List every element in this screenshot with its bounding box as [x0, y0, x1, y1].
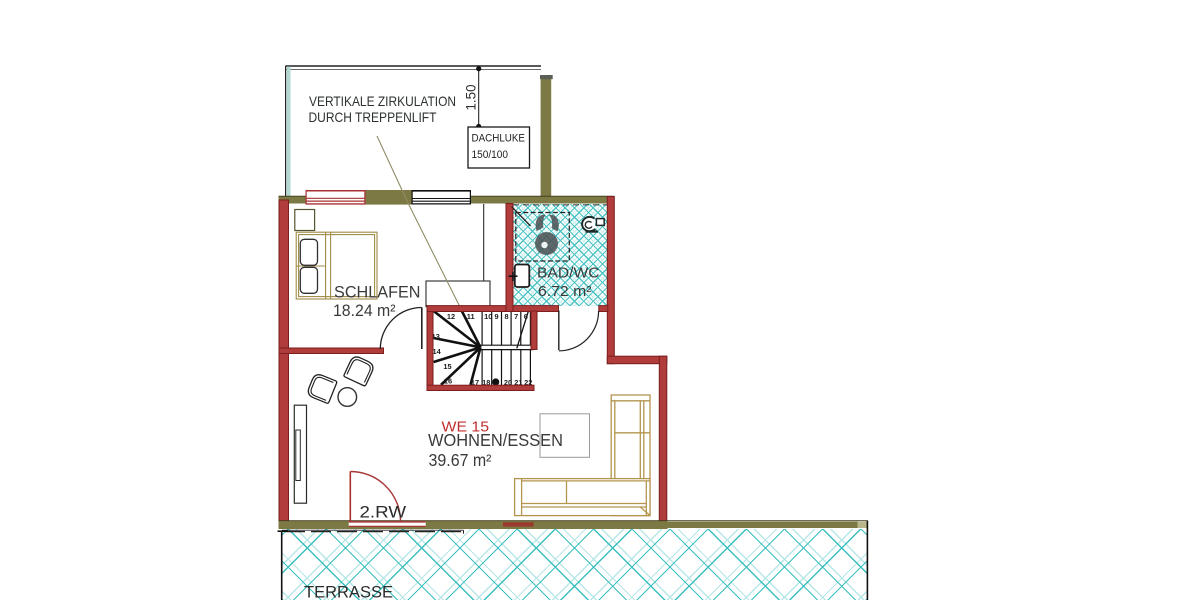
svg-text:11: 11 [467, 312, 475, 321]
svg-text:12: 12 [447, 312, 455, 321]
svg-text:TERRASSE: TERRASSE [304, 583, 393, 600]
svg-text:2.RW: 2.RW [360, 503, 407, 522]
svg-text:16: 16 [444, 377, 452, 386]
svg-text:6.72 m²: 6.72 m² [538, 284, 592, 300]
svg-text:VERTIKALE ZIRKULATION: VERTIKALE ZIRKULATION [309, 94, 456, 109]
svg-text:6: 6 [524, 312, 528, 321]
svg-text:14: 14 [432, 347, 441, 356]
svg-text:8: 8 [505, 312, 509, 321]
svg-text:7: 7 [514, 312, 518, 321]
svg-text:BAD/WC: BAD/WC [537, 266, 600, 282]
svg-text:39.67 m²: 39.67 m² [429, 450, 492, 470]
svg-text:DACHLUKE: DACHLUKE [472, 133, 526, 145]
svg-text:DURCH TREPPENLIFT: DURCH TREPPENLIFT [309, 110, 437, 125]
svg-text:10: 10 [484, 312, 492, 321]
svg-text:9: 9 [495, 312, 499, 321]
svg-text:150/100: 150/100 [472, 149, 509, 161]
svg-text:15: 15 [443, 362, 451, 371]
svg-text:WOHNEN/ESSEN: WOHNEN/ESSEN [428, 430, 563, 450]
svg-text:SCHLAFEN: SCHLAFEN [334, 283, 421, 302]
svg-text:18.24 m²: 18.24 m² [333, 301, 396, 320]
svg-text:1.50: 1.50 [463, 84, 479, 110]
